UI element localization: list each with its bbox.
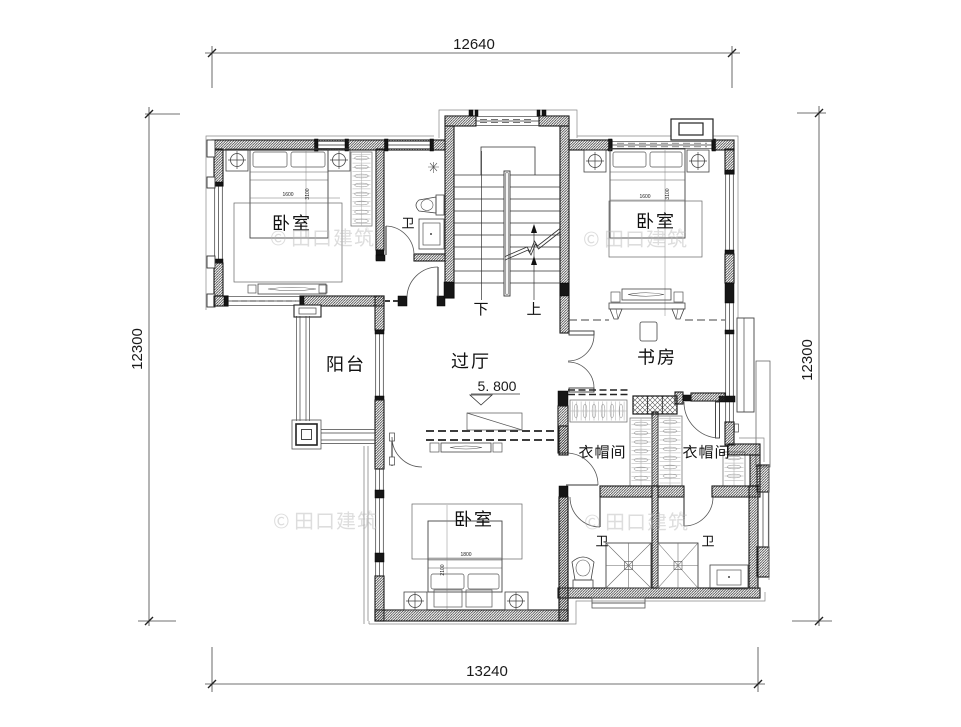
svg-text:1600: 1600 xyxy=(282,192,293,198)
svg-text:3100: 3100 xyxy=(305,188,311,199)
svg-text:3100: 3100 xyxy=(665,188,671,199)
svg-text:13240: 13240 xyxy=(466,663,508,680)
svg-text:1800: 1800 xyxy=(460,552,471,558)
svg-text:12640: 12640 xyxy=(453,36,495,53)
svg-text:12300: 12300 xyxy=(799,339,816,381)
svg-text:1600: 1600 xyxy=(639,194,650,200)
svg-text:2100: 2100 xyxy=(440,564,446,575)
svg-text:5. 800: 5. 800 xyxy=(478,378,517,394)
svg-text:12300: 12300 xyxy=(129,328,146,370)
